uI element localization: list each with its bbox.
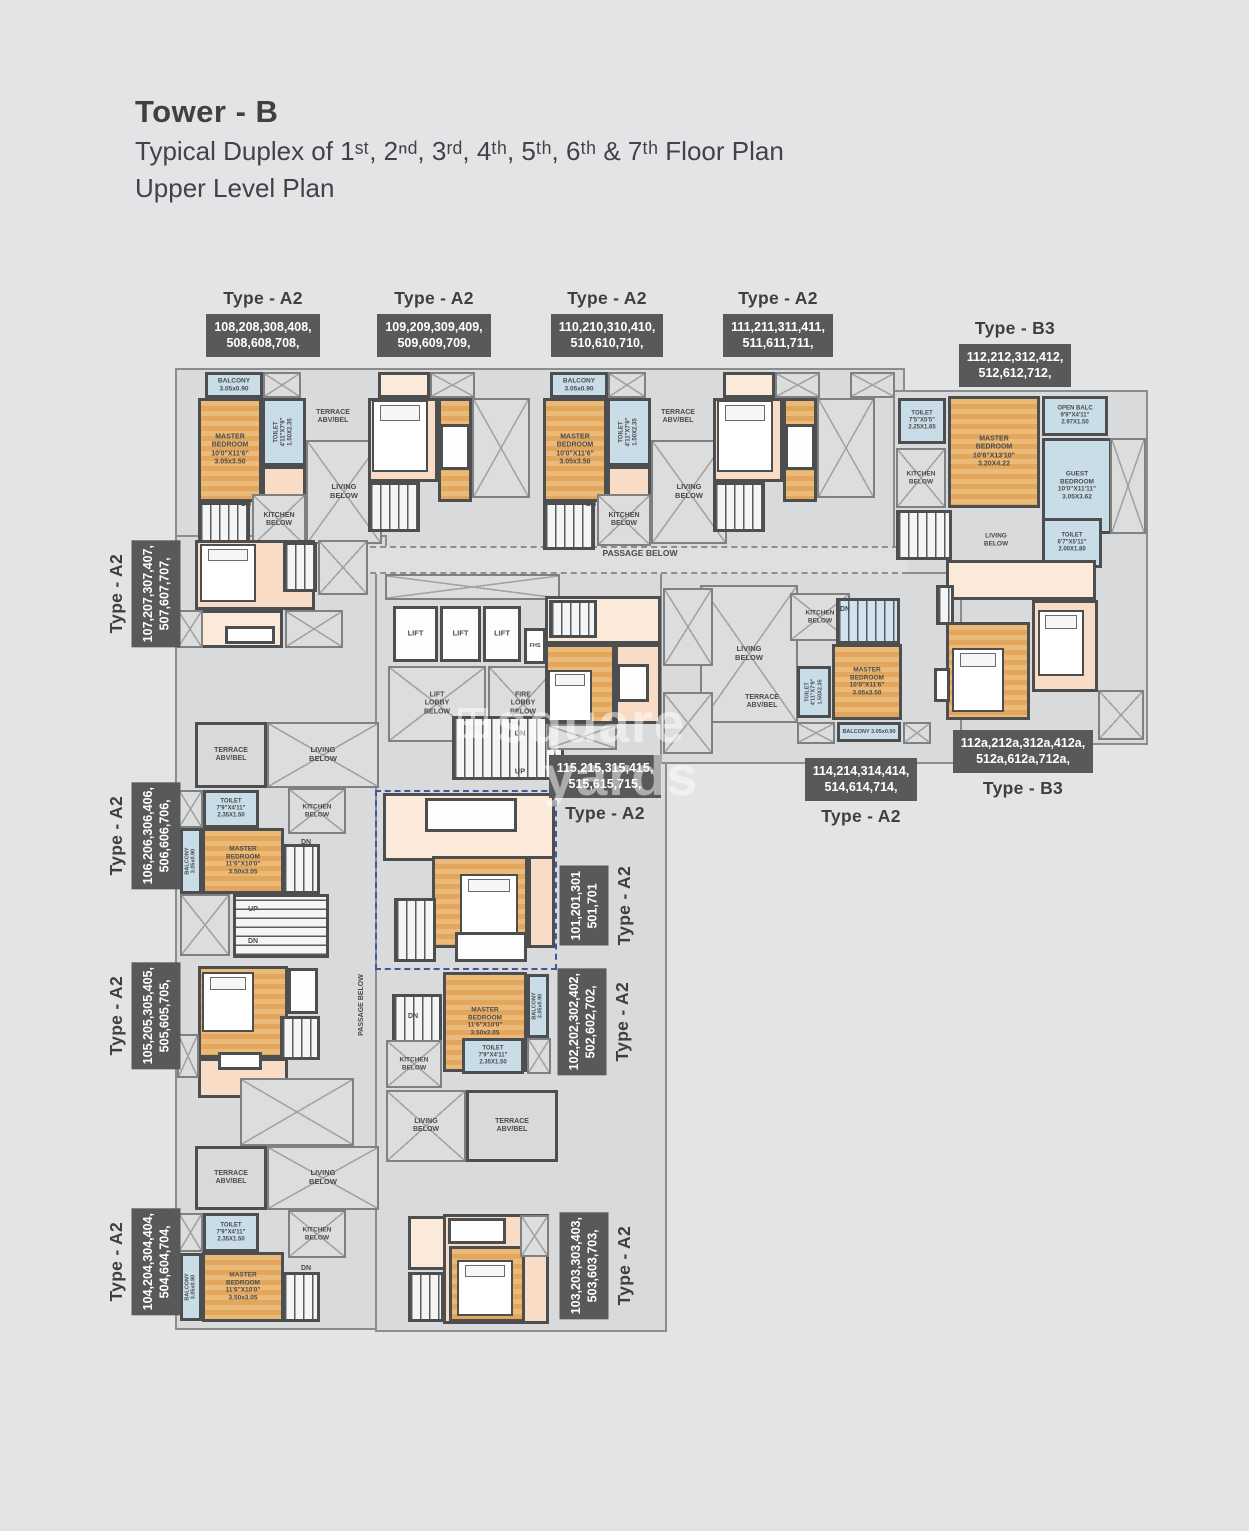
room-balcony: BALCONY 3.05x0.90 bbox=[180, 828, 202, 894]
room-toilet: TOILET 7'9"X4'11" 2.35X1.50 bbox=[203, 790, 259, 828]
unit-numbers-chip: 105,205,305,405, 505,605,705, bbox=[132, 962, 181, 1069]
pillow-icon bbox=[1045, 615, 1077, 629]
shaft-void bbox=[385, 574, 560, 600]
pillow-icon bbox=[555, 674, 585, 686]
shaft-void bbox=[472, 398, 530, 498]
unit-type-label: Type - A2 bbox=[738, 288, 818, 309]
room-master-bedroom: MASTER BEDROOM 10'6"X13'10" 3.20X4.22 bbox=[948, 396, 1040, 508]
room-terrace-label: TERRACE ABV/BEL bbox=[495, 1118, 529, 1135]
room-master-bedroom-label: MASTER BEDROOM 10'6"X13'10" 3.20X4.22 bbox=[973, 436, 1015, 469]
void-kitchen-below-label: KITCHEN BELOW bbox=[303, 1226, 332, 1241]
room-balcony: BALCONY 3.05x0.90 bbox=[837, 722, 901, 742]
stairs bbox=[233, 894, 329, 958]
room-toilet-label: TOILET 4'11"X7'9" 1.50X2.35 bbox=[273, 418, 294, 447]
stairs bbox=[936, 585, 954, 625]
plan-level: Upper Level Plan bbox=[135, 173, 784, 204]
room-lift: LIFT bbox=[440, 606, 481, 662]
unit-type-label: Type - A2 bbox=[106, 796, 127, 876]
room-balcony-label: BALCONY 3.05x0.90 bbox=[185, 1273, 198, 1300]
dn-label: DN bbox=[248, 938, 258, 946]
room-terrace: TERRACE ABV/BEL bbox=[195, 1146, 267, 1210]
void-living-below-label: LIVING BELOW bbox=[413, 1118, 439, 1135]
shaft-void bbox=[527, 1038, 551, 1074]
plan-subtitle: Typical Duplex of 1ˢᵗ, 2ⁿᵈ, 3ʳᵈ, 4ᵗʰ, 5ᵗ… bbox=[135, 136, 784, 167]
unit-numbers-chip: 103,203,303,403, 503,603,703, bbox=[560, 1212, 609, 1319]
room-balcony-label: BALCONY 3.05x0.90 bbox=[185, 847, 198, 874]
void-living-below: LIVING BELOW bbox=[267, 722, 379, 788]
void-fire-lobby-below-label: FIRE LOBBY BELOW bbox=[510, 692, 536, 717]
unit-type-label: Type - A2 bbox=[567, 288, 647, 309]
bed-icon bbox=[717, 400, 773, 472]
unit-type-label: Type - A2 bbox=[223, 288, 303, 309]
unit-numbers-chip: 110,210,310,410, 510,610,710, bbox=[551, 314, 664, 357]
pillow-icon bbox=[210, 977, 247, 990]
room-balcony bbox=[378, 372, 430, 398]
room-toilet: TOILET 4'11"X7'9" 1.50X2.35 bbox=[797, 666, 831, 718]
room-balcony bbox=[723, 372, 775, 398]
void-kitchen-below-label: KITCHEN BELOW bbox=[806, 609, 835, 624]
void-kitchen-below: KITCHEN BELOW bbox=[597, 494, 651, 546]
unit-label-group: Type - A2110,210,310,410, 510,610,710, bbox=[532, 288, 682, 357]
room-lift: LIFT bbox=[483, 606, 521, 662]
stairs bbox=[896, 510, 952, 560]
room-open-balcony: OPEN BALC 9'9"X4'11" 2.97X1.50 bbox=[1042, 396, 1108, 436]
up-label: UP bbox=[248, 906, 258, 914]
room-master-bedroom: MASTER BEDROOM 11'6"X10'0" 3.50x3.05 bbox=[202, 828, 284, 894]
void-kitchen-below-label: KITCHEN BELOW bbox=[303, 803, 332, 818]
dn-label: DN bbox=[301, 1265, 311, 1273]
unit-type-label: Type - A2 bbox=[394, 288, 474, 309]
unit-type-label: Type - A2 bbox=[565, 803, 645, 824]
void-kitchen-below: KITCHEN BELOW bbox=[386, 1040, 442, 1088]
unit-numbers-chip: 108,208,308,408, 508,608,708, bbox=[206, 314, 319, 357]
room-kitchen-fixtures bbox=[218, 1052, 262, 1070]
room-toilet-label: TOILET 7'9"X4'11" 2.35X1.50 bbox=[217, 798, 246, 819]
stairs bbox=[368, 482, 420, 532]
stairs bbox=[283, 542, 317, 592]
room-kitchen-fixtures bbox=[440, 424, 470, 470]
stairs bbox=[549, 600, 597, 638]
shaft-void bbox=[263, 372, 301, 398]
room-balcony-label: BALCONY 3.05x0.90 bbox=[532, 992, 545, 1019]
unit-label-group: Type - A2108,208,308,408, 508,608,708, bbox=[188, 288, 338, 357]
room-toilet-label: TOILET 7'9"X4'11" 2.35X1.50 bbox=[479, 1045, 508, 1066]
dn-label: DN bbox=[515, 730, 526, 739]
dn-label: DN bbox=[408, 1013, 418, 1021]
room-lift-label: LIFT bbox=[453, 630, 469, 639]
pillow-icon bbox=[960, 653, 997, 667]
room-balcony: BALCONY 3.05x0.90 bbox=[180, 1253, 202, 1321]
unit-label-group: Type - A2111,211,311,411, 511,611,711, bbox=[703, 288, 853, 357]
unit-numbers-chip: 111,211,311,411, 511,611,711, bbox=[723, 314, 833, 357]
room-fire-hose: FHS bbox=[524, 628, 546, 664]
pillow-icon bbox=[208, 549, 248, 562]
unit-numbers-chip: 107,207,307,407, 507,607,707, bbox=[132, 540, 181, 647]
up-label: UP bbox=[515, 768, 525, 777]
void-kitchen-below-label: KITCHEN BELOW bbox=[400, 1056, 429, 1071]
room-kitchen-fixtures bbox=[617, 664, 649, 702]
dn-label: DN bbox=[241, 501, 251, 509]
bed-icon bbox=[202, 972, 254, 1032]
passage-below-label: PASSAGE BELOW bbox=[358, 974, 366, 1036]
room-lift: LIFT bbox=[393, 606, 438, 662]
bed-icon bbox=[200, 544, 256, 602]
room-toilet: TOILET 4'11"X7'9" 1.50X2.35 bbox=[262, 398, 306, 466]
room-toilet-label: TOILET 4'11"X7'9" 1.50X2.35 bbox=[618, 418, 639, 447]
shaft-void bbox=[180, 894, 230, 956]
unit-label-group: 115,215,315,415, 515,615,715,Type - A2 bbox=[530, 755, 680, 824]
room-terrace-label: TERRACE ABV/BEL bbox=[214, 1170, 248, 1187]
void-kitchen-below: KITCHEN BELOW bbox=[252, 494, 306, 546]
room-master-bedroom: MASTER BEDROOM 11'6"X10'0" 3.50x3.05 bbox=[202, 1252, 284, 1322]
shaft-void bbox=[318, 540, 368, 595]
room-lift-label: LIFT bbox=[494, 630, 510, 639]
unit-numbers-chip: 106,206,306,406, 506,606,706, bbox=[132, 782, 181, 889]
pillow-icon bbox=[725, 405, 765, 421]
room-toilet-label: TOILET 4'11"X7'9" 1.50X2.35 bbox=[804, 679, 823, 706]
room-terrace-label: TERRACE ABV/BEL bbox=[214, 747, 248, 764]
room-terrace: TERRACE ABV/BEL bbox=[466, 1090, 558, 1162]
dn-label: DN bbox=[301, 839, 311, 847]
unit-type-label: Type - A2 bbox=[612, 982, 633, 1062]
unit-numbers-chip: 101,201,301 501,701 bbox=[560, 866, 609, 946]
shaft-void bbox=[797, 722, 835, 744]
shaft-void bbox=[850, 372, 895, 398]
unit-numbers-chip: 115,215,315,415, 515,615,715, bbox=[549, 755, 662, 798]
bed-icon bbox=[952, 648, 1004, 712]
unit-label-group: Type - A2106,206,306,406, 506,606,706, bbox=[106, 782, 181, 889]
shaft-void bbox=[520, 1215, 549, 1257]
room-balcony: BALCONY 3.05x0.90 bbox=[550, 372, 608, 398]
shaft-void bbox=[178, 1213, 203, 1252]
unit-label-group: Type - A2104,204,304,404, 504,604,704, bbox=[106, 1208, 181, 1315]
unit-type-label: Type - A2 bbox=[106, 976, 127, 1056]
void-kitchen-below-label: KITCHEN BELOW bbox=[263, 512, 294, 529]
room-open-balcony-label: OPEN BALC 9'9"X4'11" 2.97X1.50 bbox=[1057, 405, 1092, 426]
room-master-bedroom-label: MASTER BEDROOM 11'6"X10'0" 3.50x3.05 bbox=[468, 1007, 503, 1038]
unit-numbers-chip: 112,212,312,412, 512,612,712, bbox=[959, 344, 1072, 387]
shaft-void bbox=[663, 588, 713, 666]
living-below-label: LIVING BELOW bbox=[984, 532, 1008, 547]
passage-below-label: PASSAGE BELOW bbox=[603, 548, 678, 558]
room-master-bedroom-label: MASTER BEDROOM 11'6"X10'0" 3.50x3.05 bbox=[226, 1272, 261, 1303]
room-fire-hose-label: FHS bbox=[530, 643, 541, 649]
room-master-bedroom-label: MASTER BEDROOM 10'0"X11'6" 3.05x3.50 bbox=[211, 434, 249, 467]
void-kitchen-below: KITCHEN BELOW bbox=[896, 448, 946, 508]
unit-numbers-chip: 109,209,309,409, 509,609,709, bbox=[377, 314, 490, 357]
unit-label-group: Type - B3112,212,312,412, 512,612,712, bbox=[940, 318, 1090, 387]
room-kitchen-fixtures bbox=[448, 1218, 506, 1244]
pillow-icon bbox=[465, 1265, 505, 1277]
dn-label: DN bbox=[586, 501, 596, 509]
stairs bbox=[282, 1272, 320, 1322]
room-toilet: TOILET 4'11"X7'9" 1.50X2.35 bbox=[607, 398, 651, 466]
room-lift-label: LIFT bbox=[408, 630, 424, 639]
unit-numbers-chip: 114,214,314,414, 514,614,714, bbox=[805, 758, 918, 801]
stairs bbox=[408, 1272, 444, 1322]
title-block: Tower - B Typical Duplex of 1ˢᵗ, 2ⁿᵈ, 3ʳ… bbox=[135, 94, 784, 204]
shaft-void bbox=[430, 372, 475, 398]
void-kitchen-below-label: KITCHEN BELOW bbox=[907, 470, 936, 485]
shaft-void bbox=[817, 398, 875, 498]
void-kitchen-below: KITCHEN BELOW bbox=[288, 788, 346, 834]
dn-label: DN bbox=[840, 606, 850, 614]
unit-label-group: Type - A2107,207,307,407, 507,607,707, bbox=[106, 540, 181, 647]
tower-title: Tower - B bbox=[135, 94, 784, 130]
unit-type-label: Type - A2 bbox=[106, 554, 127, 634]
bed-icon bbox=[457, 1260, 513, 1316]
unit-numbers-chip: 104,204,304,404, 504,604,704, bbox=[132, 1208, 181, 1315]
unit-label-group: 101,201,301 501,701Type - A2 bbox=[560, 866, 635, 946]
shaft-void bbox=[903, 722, 931, 744]
unit-label-group: 112a,212a,312a,412a, 512a,612a,712a,Type… bbox=[948, 730, 1098, 799]
bed-icon bbox=[1038, 610, 1084, 676]
stairs bbox=[713, 482, 765, 532]
room-toilet: TOILET 7'5"X5'5" 2.25X1.65 bbox=[898, 398, 946, 444]
unit-label-group: 103,203,303,403, 503,603,703,Type - A2 bbox=[560, 1212, 635, 1319]
shaft-void bbox=[663, 692, 713, 754]
room-hall bbox=[946, 560, 1096, 600]
room-toilet-label: TOILET 6'7"X5'11" 2.00X1.80 bbox=[1058, 532, 1087, 553]
unit-numbers-chip: 112a,212a,312a,412a, 512a,612a,712a, bbox=[953, 730, 1093, 773]
void-living-below-label: LIVING BELOW bbox=[675, 483, 703, 501]
room-balcony: BALCONY 3.05x0.90 bbox=[205, 372, 263, 398]
shaft-void bbox=[1110, 438, 1146, 534]
void-living-below-label: LIVING BELOW bbox=[735, 645, 763, 663]
void-living-below: LIVING BELOW bbox=[267, 1146, 379, 1210]
room-master-bedroom-label: MASTER BEDROOM 10'0"X11'6" 3.05x3.50 bbox=[556, 434, 594, 467]
room-toilet-fixture bbox=[934, 668, 950, 702]
void-living-below: LIVING BELOW bbox=[386, 1090, 466, 1162]
bed-icon bbox=[372, 400, 428, 472]
shaft-void bbox=[177, 610, 203, 648]
shaft-void bbox=[285, 610, 343, 648]
unit-type-label: Type - A2 bbox=[106, 1222, 127, 1302]
room-master-bedroom: MASTER BEDROOM 10'0"X11'6" 3.05x3.50 bbox=[832, 644, 902, 720]
unit-label-group: Type - A2109,209,309,409, 509,609,709, bbox=[359, 288, 509, 357]
shaft-void bbox=[547, 724, 617, 750]
unit-label-group: Type - A2105,205,305,405, 505,605,705, bbox=[106, 962, 181, 1069]
shaft-void bbox=[608, 372, 646, 398]
void-kitchen-below-label: KITCHEN BELOW bbox=[608, 512, 639, 529]
void-living-below-label: LIVING BELOW bbox=[330, 483, 358, 501]
void-living-below-label: LIVING BELOW bbox=[309, 1169, 337, 1187]
unit-label-group: 114,214,314,414, 514,614,714,Type - A2 bbox=[786, 758, 936, 827]
bed-icon bbox=[548, 670, 592, 722]
stairs bbox=[543, 502, 595, 550]
room-master-bedroom: MASTER BEDROOM 10'0"X11'6" 3.05x3.50 bbox=[543, 398, 607, 502]
room-toilet-label: TOILET 7'9"X4'11" 2.35X1.50 bbox=[217, 1222, 246, 1243]
pillow-icon bbox=[380, 405, 420, 421]
room-guest-bedroom-label: GUEST BEDROOM 10'0"X11'11" 3.05X3.62 bbox=[1058, 471, 1096, 502]
room-balcony-label: BALCONY 3.05x0.90 bbox=[563, 377, 595, 392]
room-master-bedroom-label: MASTER BEDROOM 10'0"X11'6" 3.05x3.50 bbox=[850, 667, 885, 698]
room-toilet-label: TOILET 7'5"X5'5" 2.25X1.65 bbox=[908, 410, 935, 431]
shaft-void bbox=[178, 790, 203, 828]
unit-label-group: 102,202,302,402, 502,602,702,Type - A2 bbox=[558, 968, 633, 1075]
room-toilet: TOILET 7'9"X4'11" 2.35X1.50 bbox=[462, 1038, 524, 1074]
terrace-label: TERRACE ABV/BEL bbox=[745, 694, 779, 711]
terrace-label: TERRACE ABV/BEL bbox=[661, 409, 695, 426]
unit-type-label: Type - A2 bbox=[614, 1226, 635, 1306]
unit-type-label: Type - B3 bbox=[983, 778, 1063, 799]
room-kitchen-fixtures bbox=[785, 424, 815, 470]
unit-type-label: Type - B3 bbox=[975, 318, 1055, 339]
unit-type-label: Type - A2 bbox=[821, 806, 901, 827]
room-master-bedroom: MASTER BEDROOM 10'0"X11'6" 3.05x3.50 bbox=[198, 398, 262, 502]
room-balcony-label: BALCONY 3.05x0.90 bbox=[218, 377, 250, 392]
shaft-void bbox=[775, 372, 820, 398]
unit-numbers-chip: 102,202,302,402, 502,602,702, bbox=[558, 968, 607, 1075]
shaft-void bbox=[1098, 690, 1144, 740]
terrace-label: TERRACE ABV/BEL bbox=[316, 409, 350, 426]
void-kitchen-below: KITCHEN BELOW bbox=[288, 1210, 346, 1258]
room-terrace: TERRACE ABV/BEL bbox=[195, 722, 267, 788]
floor-plan-page: Tower - B Typical Duplex of 1ˢᵗ, 2ⁿᵈ, 3ʳ… bbox=[0, 0, 1249, 1531]
shaft-void bbox=[240, 1078, 354, 1146]
unit-type-label: Type - A2 bbox=[614, 866, 635, 946]
room-closet bbox=[288, 968, 318, 1014]
void-living-below-label: LIVING BELOW bbox=[309, 746, 337, 764]
room-balcony: BALCONY 3.05x0.90 bbox=[527, 974, 549, 1038]
stairs bbox=[280, 1016, 320, 1060]
room-toilet: TOILET 7'9"X4'11" 2.35X1.50 bbox=[203, 1213, 259, 1252]
void-lift-lobby-below-label: LIFT LOBBY BELOW bbox=[424, 692, 450, 717]
stairs bbox=[282, 844, 320, 894]
room-balcony-label: BALCONY 3.05x0.90 bbox=[842, 729, 895, 735]
room-kitchen-fixtures bbox=[225, 626, 275, 644]
room-master-bedroom-label: MASTER BEDROOM 11'6"X10'0" 3.50x3.05 bbox=[226, 846, 261, 877]
